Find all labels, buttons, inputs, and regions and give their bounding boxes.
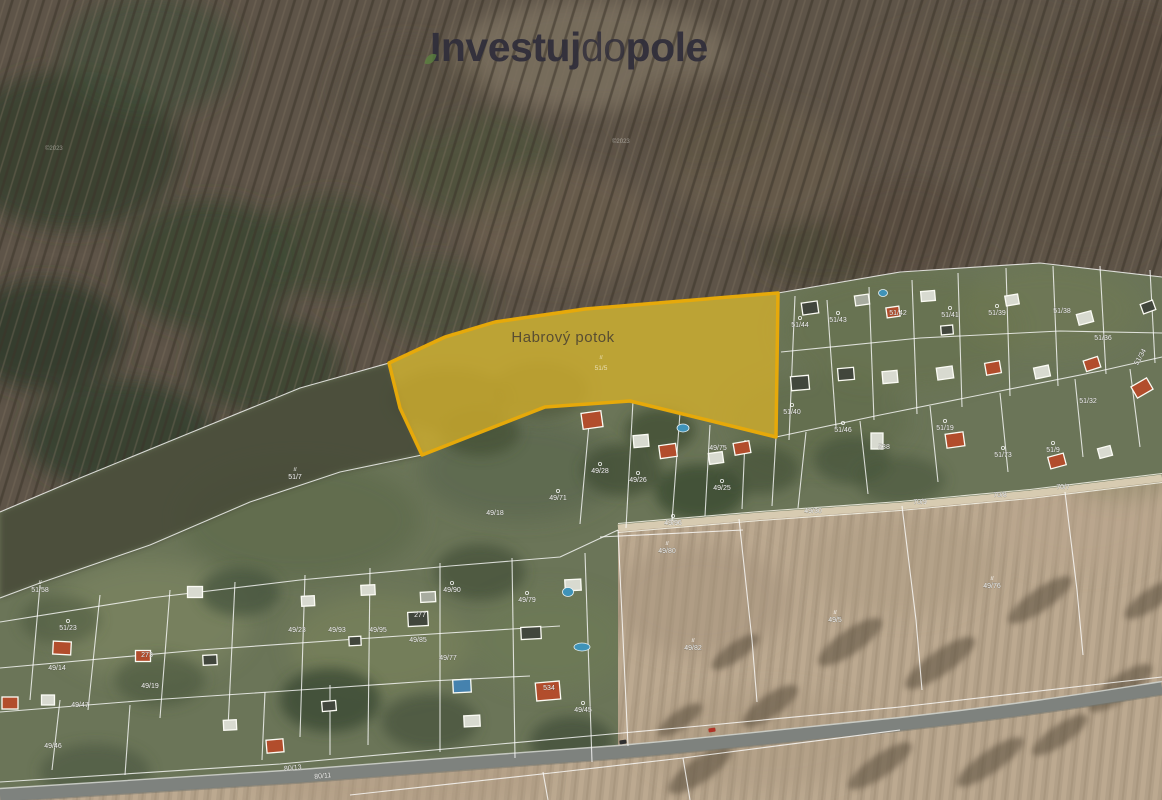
pool — [879, 290, 888, 297]
building — [708, 452, 723, 465]
building — [941, 325, 954, 335]
logo-text-investuj: Investuj — [430, 24, 581, 70]
parcel-number: 49/96 — [664, 520, 682, 527]
listing-map-image: Habrový potok il 51/5 51/4451/4351/4251/… — [0, 0, 1162, 800]
meadow-symbol: il — [293, 467, 297, 473]
parcel-number: 49/25 — [713, 485, 731, 492]
building — [985, 361, 1002, 375]
satellite-map: Habrový potok il 51/5 51/4451/4351/4251/… — [0, 0, 1162, 800]
building — [790, 375, 809, 391]
parcel-number: 51/36 — [1094, 335, 1112, 342]
parcel-number: 49/5 — [828, 617, 842, 624]
building — [581, 411, 603, 430]
parcel-label: 49/47 — [71, 702, 89, 709]
parcel-label: 51/36 — [1094, 335, 1112, 342]
parcel-number: 49/85 — [409, 637, 427, 644]
parcel-number: 51/42 — [889, 310, 907, 317]
meadow-symbol: il — [833, 610, 837, 616]
parcel-number: 51/44 — [791, 322, 809, 329]
parcel-label: 49/18 — [486, 510, 504, 517]
building — [733, 441, 751, 456]
parcel-number: 49/23 — [288, 627, 306, 634]
parcel-number: 49/28 — [591, 468, 609, 475]
building — [223, 720, 237, 731]
pool — [563, 588, 574, 597]
building — [453, 679, 472, 693]
meadow-symbol: il — [665, 541, 669, 547]
parcel-number: 51/73 — [994, 452, 1012, 459]
parcel-label: 51/32 — [1079, 398, 1097, 405]
parcel-label: 49/85 — [409, 637, 427, 644]
parcel-number: 70/9 — [913, 499, 927, 506]
building — [659, 443, 678, 458]
pool — [677, 424, 689, 432]
parcel-label: 49/95 — [369, 627, 387, 634]
parcel-number: 49/90 — [443, 587, 461, 594]
parcel-number: 51/58 — [31, 587, 49, 594]
building — [349, 636, 361, 646]
parcel-label: 538 — [878, 444, 890, 451]
meadow-symbol: il — [990, 576, 994, 582]
building — [1034, 365, 1051, 379]
building — [53, 641, 72, 655]
parcel-label: 49/93 — [328, 627, 346, 634]
parcel-label: 51/42 — [889, 310, 907, 317]
parcel-number: 51/23 — [59, 625, 77, 632]
parcel-number: 534 — [543, 685, 555, 692]
parcel-number: 49/18 — [486, 510, 504, 517]
building — [361, 585, 376, 596]
parcel-number: 49/80 — [658, 548, 676, 555]
parcel-number: 49/46 — [44, 743, 62, 750]
building — [945, 432, 965, 448]
parcel-number: 49/77 — [439, 655, 457, 662]
parcel-number: 51/38 — [1053, 308, 1071, 315]
parcel-label: 273 — [141, 652, 153, 659]
parcel-label: 70/9 — [913, 499, 927, 506]
parcel-number: 49/75 — [709, 445, 727, 452]
parcel-number: 51/40 — [783, 409, 801, 416]
parcel-label: 51/38 — [1053, 308, 1071, 315]
parcel-number: 49/93 — [328, 627, 346, 634]
parcel-label: 49/46 — [44, 743, 62, 750]
parcel-number: 49/45 — [574, 707, 592, 714]
parcel-number: 51/43 — [829, 317, 847, 324]
parcel-label: 49/23 — [288, 627, 306, 634]
parcel-number: 70/8 — [993, 492, 1007, 499]
parcel-label: 70/8 — [993, 492, 1007, 499]
building — [921, 290, 936, 301]
parcel-number: 70/7 — [1056, 484, 1070, 491]
building — [882, 370, 898, 383]
parcel-number: 51/19 — [936, 425, 954, 432]
building — [801, 301, 819, 315]
parcel-number: 49/82 — [684, 645, 702, 652]
investujdopole-logo: Investujdopole — [430, 24, 708, 71]
parcel-number: 273 — [141, 652, 153, 659]
copyright-watermark: ©2023 — [612, 138, 630, 145]
logo-text-do: do — [581, 24, 626, 70]
parcel-number: 49/71 — [549, 495, 567, 502]
building — [266, 739, 284, 753]
building — [1005, 294, 1020, 306]
parcel-number: 277 — [414, 612, 426, 619]
parcel-number: 49/47 — [71, 702, 89, 709]
highlight-parcel-number: 51/5 — [595, 365, 608, 372]
building — [301, 596, 315, 607]
meadow-symbol: il — [691, 638, 695, 644]
parcel-number: 51/9 — [1046, 447, 1060, 454]
building — [420, 592, 436, 603]
building — [854, 294, 869, 306]
building — [322, 700, 337, 711]
building — [633, 434, 649, 447]
pool — [574, 643, 590, 651]
building — [188, 587, 203, 598]
meadow-symbol: il — [38, 580, 42, 586]
parcel-label: 49/19 — [141, 683, 159, 690]
parcel-number: 49/79 — [518, 597, 536, 604]
building — [521, 626, 542, 639]
parcel-number: 49/76 — [983, 583, 1001, 590]
building — [42, 695, 55, 705]
parcel-number: 51/7 — [288, 474, 302, 481]
stream-label: Habrový potok — [511, 329, 614, 346]
building — [203, 655, 218, 666]
parcel-label: 534 — [543, 685, 555, 692]
copyright-watermark: ©2023 — [45, 145, 63, 152]
logo-text-pole: pole — [626, 24, 708, 70]
building — [936, 366, 954, 380]
parcel-label: 49/77 — [439, 655, 457, 662]
parcel-number: 51/46 — [834, 427, 852, 434]
parcel-number: 49/95 — [369, 627, 387, 634]
parcel-number: 51/41 — [941, 312, 959, 319]
building — [2, 697, 18, 709]
parcel-number: 538 — [878, 444, 890, 451]
building — [838, 367, 855, 380]
parcel-number: 49/30 — [804, 508, 822, 515]
building — [464, 715, 481, 727]
parcel-number: 49/19 — [141, 683, 159, 690]
parcel-number: 51/39 — [988, 310, 1006, 317]
parcel-label: 49/14 — [48, 665, 66, 672]
parcel-number: 49/14 — [48, 665, 66, 672]
parcel-label: 49/30 — [804, 508, 822, 515]
parcel-label: 70/7 — [1056, 484, 1070, 491]
highlight-parcel-symbol: il — [599, 355, 603, 361]
parcel-label: 49/75 — [709, 445, 727, 452]
parcel-label: 277 — [414, 612, 426, 619]
parcel-number: 49/26 — [629, 477, 647, 484]
parcel-number: 51/32 — [1079, 398, 1097, 405]
